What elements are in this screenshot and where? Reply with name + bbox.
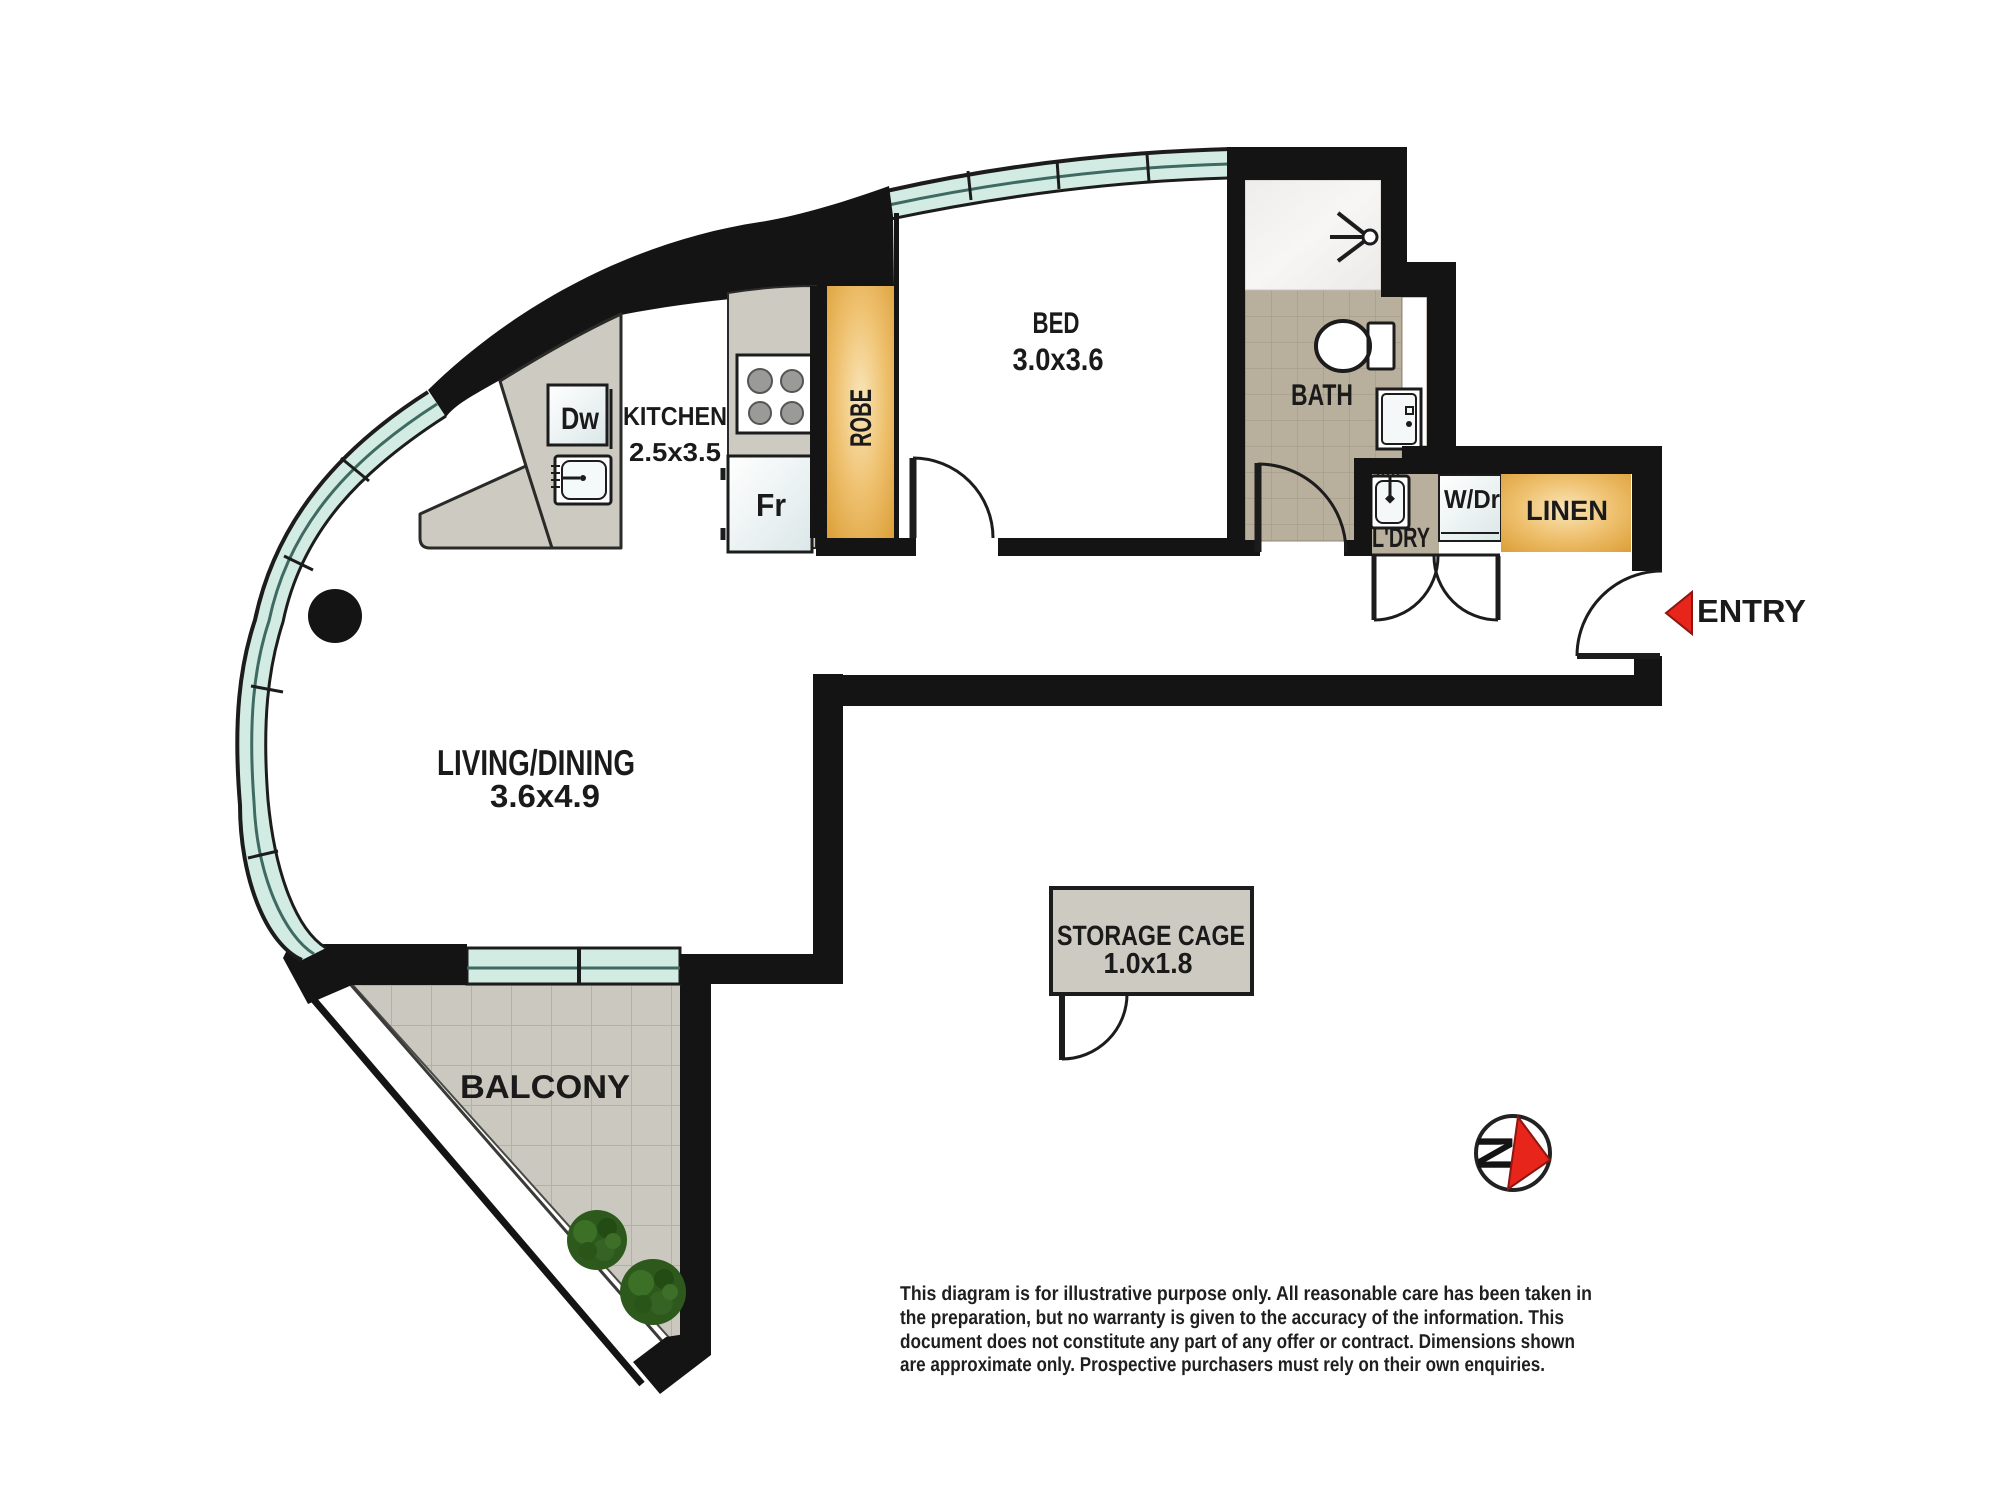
svg-text:Dw: Dw (561, 401, 600, 436)
svg-text:LINEN: LINEN (1526, 495, 1608, 526)
svg-text:2.5x3.5: 2.5x3.5 (629, 437, 721, 467)
svg-text:ENTRY: ENTRY (1697, 593, 1806, 629)
svg-text:3.0x3.6: 3.0x3.6 (1013, 342, 1104, 377)
svg-text:BALCONY: BALCONY (460, 1068, 630, 1105)
svg-text:L'DRY: L'DRY (1372, 522, 1430, 553)
svg-text:LIVING/DINING: LIVING/DINING (437, 742, 635, 783)
svg-text:W/Dr: W/Dr (1444, 484, 1500, 514)
svg-text:Fr: Fr (756, 487, 786, 523)
svg-text:document does not constitute a: document does not constitute any part of… (900, 1331, 1575, 1353)
svg-text:This diagram is for illustrati: This diagram is for illustrative purpose… (900, 1283, 1592, 1305)
svg-text:BATH: BATH (1291, 379, 1353, 412)
svg-text:STORAGE CAGE: STORAGE CAGE (1057, 920, 1245, 951)
svg-text:BED: BED (1033, 307, 1080, 340)
svg-text:are approximate only. Prospect: are approximate only. Prospective purcha… (900, 1354, 1545, 1376)
svg-text:ROBE: ROBE (845, 389, 878, 447)
svg-text:KITCHEN: KITCHEN (623, 401, 727, 431)
svg-text:the preparation, but no warran: the preparation, but no warranty is give… (900, 1307, 1564, 1329)
svg-text:1.0x1.8: 1.0x1.8 (1104, 948, 1193, 980)
svg-text:3.6x4.9: 3.6x4.9 (490, 778, 600, 814)
